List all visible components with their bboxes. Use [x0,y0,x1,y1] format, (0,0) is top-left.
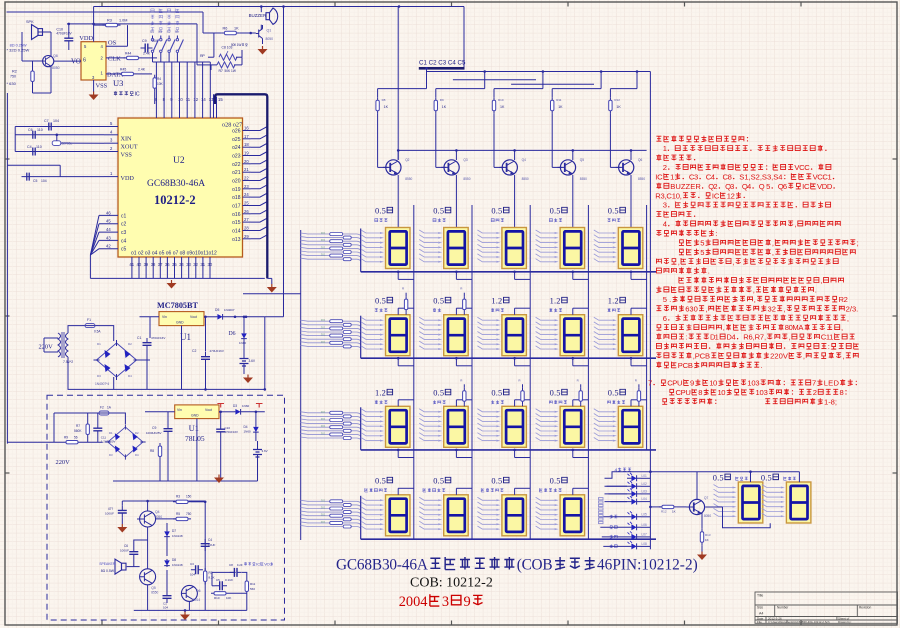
svg-text:VCC: VCC [794,163,810,172]
svg-text:C2: C2 [192,349,196,353]
svg-text:470UF16V: 470UF16V [210,349,224,353]
svg-text:c4: c4 [121,238,127,244]
svg-text:S4: S4 [150,30,154,34]
svg-text:D1: D1 [109,431,113,435]
svg-text:40: 40 [137,262,142,267]
svg-text:0.5: 0.5 [491,477,502,486]
svg-text:,: , [772,248,774,257]
svg-text:1K: 1K [616,105,621,109]
svg-text:Q5: Q5 [151,586,156,590]
svg-text:C11: C11 [821,333,834,342]
svg-text:,: , [678,257,680,266]
svg-text:S1: S1 [175,30,179,34]
svg-text:44: 44 [106,227,111,232]
svg-text:OS: OS [108,40,117,47]
svg-text:2: 2 [813,388,817,397]
svg-text:Vout: Vout [205,408,212,412]
svg-text:IC: IC [135,92,140,98]
svg-text:56: 56 [74,436,78,440]
svg-text:9: 9 [690,379,694,388]
svg-text:0.5: 0.5 [608,207,619,216]
svg-text:630: 630 [685,304,698,313]
svg-text:220V: 220V [39,344,54,351]
svg-text:.: . [815,286,817,295]
svg-text:7: 7 [648,379,652,388]
svg-text:,: , [754,295,756,304]
svg-text:D5: D5 [215,308,219,312]
svg-text:R3,C10,: R3,C10, [655,191,682,200]
svg-text:o21: o21 [232,170,241,176]
svg-text:50K 1W: 50K 1W [225,69,236,73]
svg-text:c1: c1 [121,213,127,219]
svg-text:S2: S2 [167,30,171,34]
svg-text:750: 750 [186,512,192,516]
svg-text:Q4: Q4 [155,510,160,514]
svg-text:11: 11 [186,97,191,102]
svg-text:R3: R3 [176,495,180,499]
svg-text:0.5: 0.5 [550,389,561,398]
svg-text:42: 42 [106,244,111,249]
svg-text:R44: R44 [125,52,131,56]
svg-text:9014: 9014 [193,598,200,602]
svg-text:470UF16V: 470UF16V [151,336,165,340]
svg-text:8550: 8550 [405,177,412,181]
svg-text:Q3: Q3 [725,182,734,191]
svg-text:2.4K: 2.4K [143,52,151,56]
svg-text:220V: 220V [56,459,71,466]
svg-text:o16: o16 [232,212,241,218]
svg-text:1.2: 1.2 [550,297,561,306]
svg-text:C1: C1 [137,336,141,340]
svg-text:104: 104 [41,179,47,183]
svg-text:8550: 8550 [463,177,470,181]
svg-text:8550: 8550 [580,177,587,181]
svg-text:47?: 47? [108,507,114,511]
svg-text:1K: 1K [442,105,447,109]
svg-text:,: , [705,304,707,313]
svg-text:L02: L02 [642,482,648,486]
svg-text:Q6: Q6 [638,158,642,162]
svg-text:1N60: 1N60 [239,341,247,345]
svg-text:5: 5 [700,238,704,247]
svg-text:VDD: VDD [817,182,833,191]
svg-text:41: 41 [129,262,134,267]
svg-text:R7: R7 [76,424,80,428]
svg-text:4: 4 [663,220,667,229]
svg-text:0.5: 0.5 [433,207,444,216]
svg-text:Number: Number [777,606,789,610]
svg-text:Q3: Q3 [463,158,467,162]
svg-text:10UF: 10UF [208,543,216,547]
svg-text:39: 39 [144,262,149,267]
svg-text:o19: o19 [232,187,241,193]
svg-text:Size: Size [757,606,763,610]
svg-text:34: 34 [179,262,184,267]
svg-text:104: 104 [152,39,158,43]
svg-text:.: . [761,361,763,370]
svg-text:C4: C4 [208,538,212,542]
svg-text:R11: R11 [556,98,562,102]
svg-text:o25: o25 [232,137,241,143]
svg-text:103: 103 [747,379,759,388]
svg-text:(COB: (COB [517,557,553,574]
svg-text:U3: U3 [113,78,123,88]
svg-text:IC: IC [712,191,720,200]
svg-text:D1: D1 [97,342,101,346]
svg-text:BUZZER: BUZZER [249,13,267,18]
svg-text:C1 C2 C3 C4 C5: C1 C2 C3 C4 C5 [419,60,466,67]
svg-text:D6: D6 [229,331,236,337]
svg-text:R10: R10 [214,596,220,600]
svg-text:CPU: CPU [667,379,682,388]
svg-text:0.5: 0.5 [375,207,386,216]
svg-text:R45: R45 [120,68,126,72]
svg-text:10212-2: 10212-2 [154,193,196,207]
svg-text:): ) [693,557,698,574]
svg-text:C6: C6 [124,544,128,548]
svg-text:33: 33 [186,262,191,267]
svg-text:o22: o22 [232,162,241,168]
svg-text:IC: IC [655,173,663,182]
svg-text:VDD: VDD [121,175,135,182]
svg-text:20: 20 [244,159,249,164]
svg-text:0.5: 0.5 [491,207,502,216]
svg-text:8050: 8050 [52,66,60,70]
svg-text:29: 29 [244,234,249,239]
svg-text:32768a: 32768a [62,142,73,146]
svg-text:S1,S2,S3,S4: S1,S2,S3,S4 [739,173,782,182]
svg-text:L04: L04 [642,497,648,501]
svg-text:,: , [784,304,786,313]
svg-text:Revision: Revision [859,606,871,610]
svg-text:D7: D7 [172,529,176,533]
svg-text:.: . [708,267,710,276]
svg-text:1N4007*4: 1N4007*4 [95,382,109,386]
svg-text:L07: L07 [642,532,648,536]
svg-text:0.5: 0.5 [608,389,619,398]
svg-text:C3: C3 [689,173,698,182]
svg-text:1N60: 1N60 [244,430,252,434]
svg-text:8550: 8550 [522,177,529,181]
svg-text:C9: C9 [152,426,156,430]
svg-text::: : [828,342,830,351]
svg-text:1K: 1K [500,105,505,109]
svg-text:GC68B30-46A: GC68B30-46A [147,179,205,189]
svg-text:0.5: 0.5 [375,297,386,306]
svg-text:,: , [803,352,805,361]
svg-text:10: 10 [178,97,183,102]
svg-text:104: 104 [53,119,59,123]
svg-text:12: 12 [193,97,198,102]
svg-text:L06: L06 [642,523,648,527]
svg-text:R4: R4 [157,77,161,81]
svg-text:15: 15 [218,97,223,102]
svg-text:R2: R2 [12,70,17,74]
svg-text:RP: RP [200,54,205,58]
svg-text:R12: R12 [614,98,620,102]
svg-text:1000UF25V: 1000UF25V [146,431,161,435]
svg-text:25: 25 [244,201,249,206]
svg-text:32: 32 [193,262,198,267]
svg-text:R5: R5 [176,512,180,516]
svg-text:750: 750 [10,75,16,79]
svg-text:VO: VO [71,59,81,66]
svg-text:1: 1 [663,144,667,153]
svg-text:C5: C5 [216,578,220,582]
svg-text:L01: L01 [642,474,648,478]
svg-text:F1: F1 [87,318,91,322]
svg-text:SPK: SPK [26,20,34,24]
svg-text:10: 10 [709,379,717,388]
svg-text:32: 32 [768,304,777,313]
svg-text:0.5: 0.5 [761,473,772,482]
svg-text:C4: C4 [27,145,32,149]
svg-text:3: 3 [663,201,667,210]
svg-text:,: , [772,238,774,247]
svg-text:o13: o13 [232,237,241,243]
svg-text:1N4148: 1N4148 [172,563,183,567]
svg-text:,: , [753,286,755,295]
svg-text:19: 19 [244,151,249,156]
svg-text:31: 31 [200,262,205,267]
svg-text:80MA: 80MA [785,323,805,332]
svg-text:o1 o2 o3 o4 o5 o6 o7 o8 o9o10o: o1 o2 o3 o4 o5 o6 o7 o8 o9o10o11o12 [131,251,217,257]
svg-text:COB: 10212-2: COB: 10212-2 [410,576,493,591]
svg-text:560: 560 [250,587,255,591]
svg-text:8: 8 [840,388,844,397]
svg-text:BUZZER: BUZZER [670,182,701,191]
svg-text:3.6V: 3.6V [262,449,268,453]
svg-text:A4: A4 [759,612,763,616]
svg-text:37: 37 [158,262,163,267]
svg-text:104: 104 [163,606,168,610]
svg-text:C:\Users\Documents\GC68B30-46A: C:\Users\Documents\GC68B30-46A-10212-2.S… [768,620,830,624]
svg-text:21: 21 [244,167,249,172]
svg-text:o20: o20 [232,179,241,185]
svg-text:VDD: VDD [79,35,93,42]
svg-text:C8: C8 [723,173,732,182]
svg-text:R12: R12 [661,510,667,514]
svg-text:Q1: Q1 [267,29,272,33]
svg-text:GND: GND [176,321,184,325]
svg-text:R6,R7,: R6,R7, [743,333,766,342]
svg-text:Q6: Q6 [778,182,787,191]
svg-text:VSS: VSS [96,83,108,90]
svg-text:VSS: VSS [121,151,133,158]
svg-text:R9: R9 [440,98,444,102]
svg-text:1.2: 1.2 [491,297,502,306]
svg-text:CPU: CPU [676,388,691,397]
svg-text:1.2: 1.2 [608,297,619,306]
svg-text:,: , [789,333,791,342]
svg-text:7: 7 [812,379,816,388]
svg-text:36: 36 [165,262,170,267]
svg-text:3.6V: 3.6V [249,359,256,363]
svg-text:C9: C9 [142,39,147,43]
svg-text:R7: R7 [219,69,223,73]
svg-text:R3: R3 [107,19,112,23]
svg-text:18: 18 [244,142,249,147]
svg-text:VCC1: VCC1 [813,173,832,182]
svg-text:220V: 220V [770,352,789,361]
svg-text:SPEAKER: SPEAKER [99,562,116,566]
svg-text:D8: D8 [172,558,176,562]
svg-text:1K: 1K [234,27,239,31]
svg-text:R8: R8 [150,449,154,453]
svg-text:o18: o18 [232,195,241,201]
svg-text:,PCB: ,PCB [693,352,710,361]
svg-text:14: 14 [201,97,206,102]
svg-text:560K: 560K [74,429,82,433]
svg-text:470UF16V: 470UF16V [225,430,239,434]
svg-text:R13: R13 [705,533,711,537]
svg-text:R9: R9 [64,436,68,440]
svg-text:1N4148: 1N4148 [172,534,183,538]
svg-text:D4: D4 [726,333,735,342]
svg-text:8550: 8550 [151,591,158,595]
svg-text:o28 o27: o28 o27 [222,122,242,129]
svg-text:,: , [794,220,796,229]
svg-text:C6: C6 [28,128,33,132]
svg-text:D3: D3 [233,404,237,408]
svg-text:2/3.: 2/3. [846,304,859,313]
svg-text:C8: C8 [229,563,233,567]
svg-text:43: 43 [106,235,111,240]
svg-text:S3: S3 [158,30,162,34]
svg-text:Vout: Vout [190,315,197,319]
svg-text:150: 150 [186,495,192,499]
svg-text::: : [715,229,717,238]
svg-text:46PIN:10212-2: 46PIN:10212-2 [597,557,693,574]
svg-text:Q4: Q4 [522,158,526,162]
svg-text:470UF10V: 470UF10V [56,32,72,36]
svg-text:0.5: 0.5 [550,477,561,486]
svg-text:CLK: CLK [108,56,121,63]
svg-text:0.1UF: 0.1UF [225,578,233,582]
svg-text:,: , [847,314,849,323]
svg-text:0.5: 0.5 [713,473,724,482]
svg-text:D2: D2 [128,342,132,346]
svg-text:0.5: 0.5 [433,297,444,306]
svg-text:R10: R10 [498,98,504,102]
svg-text:8Ω 0.5W: 8Ω 0.5W [101,569,115,573]
svg-text:5: 5 [700,248,704,257]
svg-text:Title: Title [757,594,763,598]
svg-text:24: 24 [244,192,249,197]
svg-text:Q 5: Q 5 [759,182,771,191]
svg-text:Q2: Q2 [405,158,409,162]
svg-text:1: 1 [670,173,674,182]
svg-text:3: 3 [442,594,449,610]
svg-text:R6: R6 [223,27,228,31]
svg-text:PCB: PCB [678,361,693,370]
svg-text:1K: 1K [705,538,709,542]
svg-text:100UF: 100UF [105,512,114,516]
svg-text:,: , [723,323,725,332]
svg-text:D4: D4 [128,374,132,378]
svg-text:L08: L08 [642,542,648,546]
svg-text:6: 6 [663,314,667,323]
svg-text:0.5: 0.5 [375,477,386,486]
svg-text:Q7: Q7 [704,496,708,500]
svg-text:Q8: Q8 [53,54,58,58]
svg-text:Vin: Vin [162,315,167,319]
svg-text:10: 10 [718,388,726,397]
svg-text:27: 27 [244,217,249,222]
svg-text:* 630: * 630 [7,81,17,86]
svg-text:Vin: Vin [177,408,182,412]
svg-text:1K: 1K [384,105,389,109]
svg-text:U2: U2 [173,156,185,166]
svg-text:0.5: 0.5 [433,389,444,398]
svg-text:L03: L03 [642,489,648,493]
svg-text:c2: c2 [121,222,127,228]
svg-text:XIN: XIN [121,135,133,142]
svg-text:50K 1W: 50K 1W [231,43,241,47]
svg-text:10K: 10K [157,82,164,86]
svg-text:2004: 2004 [399,594,428,610]
svg-text:38: 38 [151,262,156,267]
svg-text:2.4K: 2.4K [138,68,146,72]
svg-text:o26: o26 [232,129,241,135]
svg-text:* 32Ω 0.25W: * 32Ω 0.25W [7,48,30,53]
svg-text:8050: 8050 [266,37,274,41]
svg-text:R8: R8 [382,98,386,102]
svg-text:Drawn by:: Drawn by: [838,620,852,624]
svg-text:26: 26 [244,209,249,214]
svg-text:VO: VO [264,562,269,567]
svg-text:GND: GND [191,414,199,418]
svg-text:45: 45 [106,219,111,224]
svg-text:78L05: 78L05 [185,434,205,443]
svg-text:D2: D2 [135,431,139,435]
svg-text:110: 110 [37,128,43,132]
svg-text:R2: R2 [839,295,848,304]
svg-text:,: , [820,276,822,285]
svg-text:D3: D3 [109,453,113,457]
svg-text:6: 6 [83,58,86,64]
svg-text:R11: R11 [250,582,256,586]
svg-text:,: , [843,352,845,361]
svg-text:D4: D4 [135,453,139,457]
svg-text:1.2: 1.2 [375,389,386,398]
svg-text:o15: o15 [232,220,241,226]
svg-text:28: 28 [244,226,249,231]
svg-text:o14: o14 [232,229,241,235]
svg-text:12: 12 [727,191,735,200]
svg-text:110: 110 [36,145,42,149]
svg-text:35: 35 [172,262,177,267]
svg-text:LED: LED [824,379,840,388]
svg-text:4: 4 [615,468,618,474]
svg-text:F2: F2 [100,406,104,410]
svg-text:c3: c3 [121,230,127,236]
svg-text:2: 2 [663,163,667,172]
svg-text:,: , [732,257,734,266]
svg-text:1-8;: 1-8; [824,397,837,406]
svg-text:D4: D4 [244,425,248,429]
svg-text:9: 9 [464,594,471,610]
svg-text:46: 46 [106,210,111,215]
svg-text:GC68B30-46A: GC68B30-46A [336,557,428,574]
svg-text:16: 16 [244,126,249,131]
svg-text:C5: C5 [33,179,37,183]
svg-text:c5: c5 [121,247,127,253]
svg-text:100UF: 100UF [120,549,129,553]
svg-text:1N4007: 1N4007 [224,308,235,312]
svg-text:XOUT: XOUT [121,144,138,151]
svg-text::: : [685,333,687,342]
